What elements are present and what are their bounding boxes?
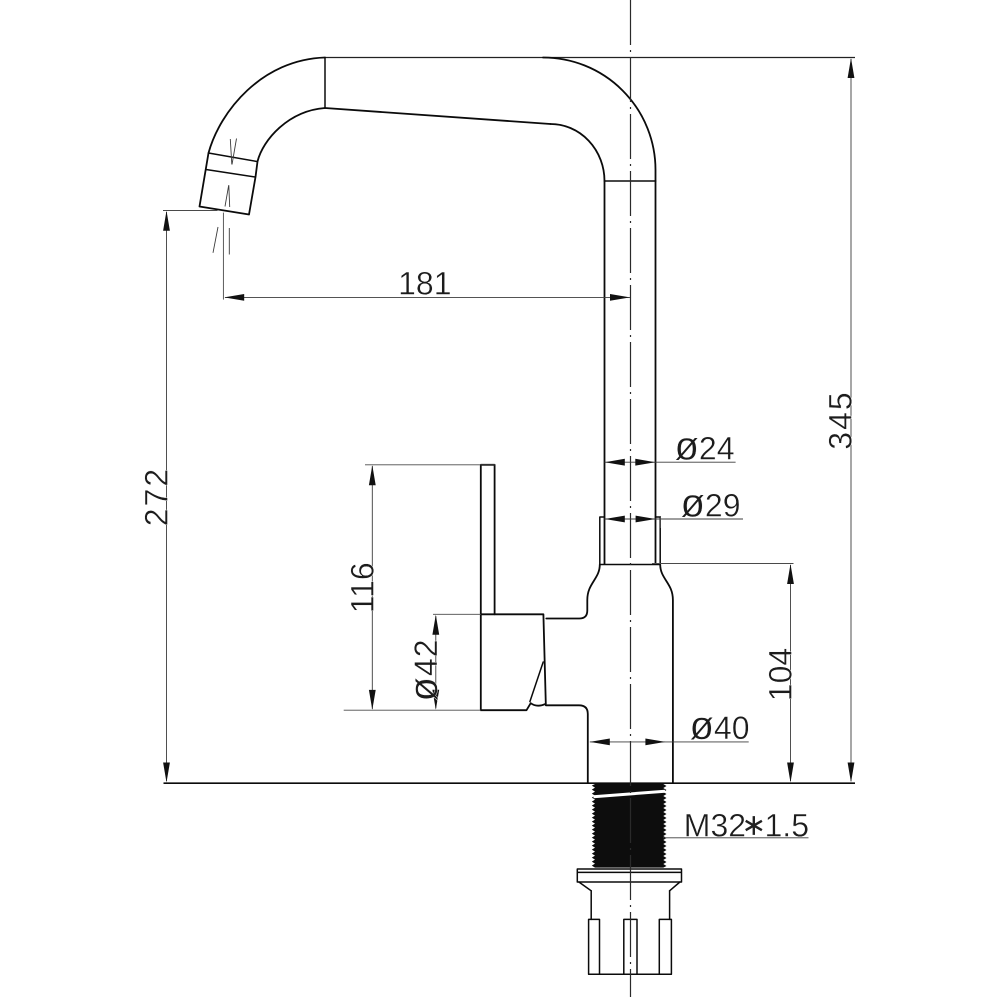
svg-text:M32: M32: [684, 807, 746, 843]
svg-text:1.5: 1.5: [765, 807, 809, 843]
svg-text:116: 116: [344, 562, 380, 613]
svg-text:272: 272: [139, 467, 175, 526]
svg-text:ø29: ø29: [680, 482, 740, 526]
svg-text:345: 345: [823, 390, 859, 449]
svg-text:ø40: ø40: [689, 704, 749, 748]
svg-text:181: 181: [398, 266, 451, 302]
svg-text:ø42: ø42: [402, 638, 446, 701]
svg-text:ø24: ø24: [674, 425, 734, 469]
svg-text:104: 104: [763, 648, 799, 701]
